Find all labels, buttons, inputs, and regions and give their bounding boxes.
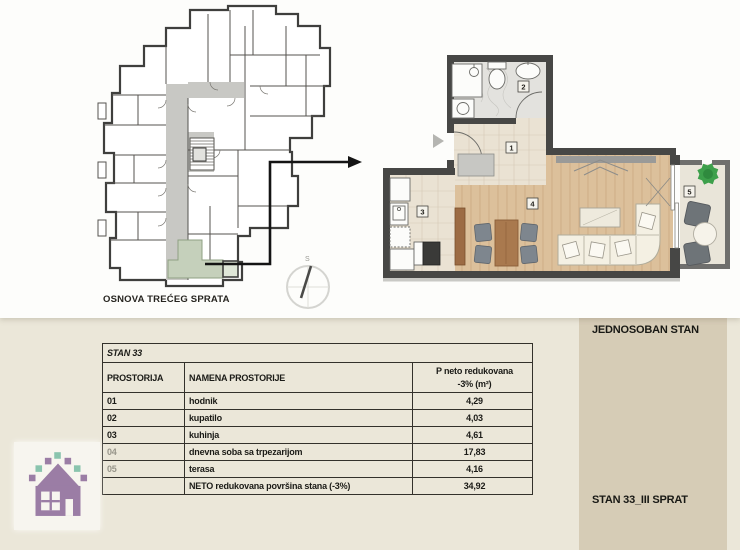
apartment-type-label: JEDNOSOBAN STAN (592, 324, 699, 336)
plans-section: S OSNOVA TREĆEG SPRATA (0, 0, 740, 318)
dining-table (495, 220, 518, 266)
table-row: 05 terasa 4,16 (103, 461, 533, 478)
compass-north-label: S (305, 256, 310, 263)
room-label-kitchen: 3 (420, 208, 424, 217)
building-outline (104, 6, 330, 286)
kitchen-oven (423, 242, 440, 265)
table-row: 01 hodnik 4,29 (103, 393, 533, 410)
logo-box: KVADRAT (14, 442, 100, 530)
col-header-namena: NAMENA PROSTORIJE (185, 363, 413, 393)
table-total-row: NETO redukovana površina stana (-3%) 34,… (103, 478, 533, 495)
coffee-table (580, 208, 620, 227)
kitchen-tall-cabinet (455, 208, 465, 265)
total-label: NETO redukovana površina stana (-3%) (185, 478, 413, 495)
unit-id-label: STAN 33_III SPRAT (592, 494, 688, 506)
overview-caption: OSNOVA TREĆEG SPRATA (103, 293, 230, 305)
total-value: 34,92 (413, 478, 533, 495)
side-panel: JEDNOSOBAN STAN STAN 33_III SPRAT (579, 318, 727, 550)
area-table: STAN 33 PROSTORIJA NAMENA PROSTORIJE P n… (102, 343, 533, 495)
entrance-arrow-icon (433, 134, 444, 148)
wall-shadow (383, 278, 680, 282)
room-label-hall: 1 (509, 144, 513, 153)
table-row: 03 kuhinja 4,61 (103, 427, 533, 444)
page: S OSNOVA TREĆEG SPRATA (0, 0, 740, 550)
apartment-floor-plan: 1 2 3 4 5 (378, 48, 736, 288)
hall-closet (458, 154, 494, 176)
room-label-terrace: 5 (687, 188, 691, 197)
terrace-table (694, 223, 717, 246)
col-header-prostorija: PROSTORIJA (103, 363, 185, 393)
kvadrat-house-icon (28, 450, 88, 520)
col-header-area: P neto redukovana -3% (m²) (413, 363, 533, 393)
table-row: 02 kupatilo 4,03 (103, 410, 533, 427)
overview-floor-plan: S OSNOVA TREĆEG SPRATA (90, 0, 370, 315)
info-section: JEDNOSOBAN STAN STAN 33_III SPRAT STAN 3… (0, 318, 740, 550)
stairwell (190, 138, 214, 170)
table-row: 04 dnevna soba sa trpezarijom 17,83 (103, 444, 533, 461)
room-label-bathroom: 2 (521, 83, 525, 92)
compass-icon: S (287, 256, 329, 308)
table-title: STAN 33 (103, 344, 533, 363)
